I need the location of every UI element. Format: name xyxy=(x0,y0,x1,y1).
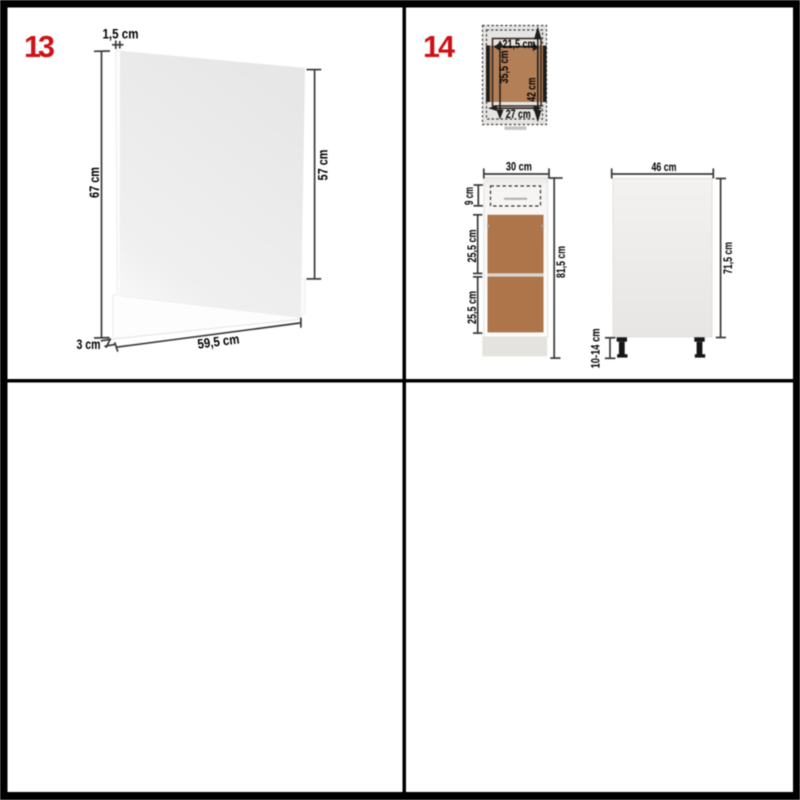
svg-text:13: 13 xyxy=(24,30,55,64)
svg-text:10-14 cm: 10-14 cm xyxy=(591,328,603,368)
svg-text:1,5 cm: 1,5 cm xyxy=(103,27,139,42)
svg-text:27 cm: 27 cm xyxy=(506,109,531,121)
svg-text:14: 14 xyxy=(423,30,455,64)
svg-text:57 cm: 57 cm xyxy=(316,150,331,181)
svg-text:21,5 cm: 21,5 cm xyxy=(503,39,536,51)
svg-text:67 cm: 67 cm xyxy=(87,167,102,198)
svg-text:25,5 cm: 25,5 cm xyxy=(467,291,479,324)
svg-text:3 cm: 3 cm xyxy=(77,337,101,352)
svg-text:81,5 cm: 81,5 cm xyxy=(556,246,568,278)
svg-text:46 cm: 46 cm xyxy=(652,162,677,174)
svg-text:25,5 cm: 25,5 cm xyxy=(467,230,479,263)
svg-text:30 cm: 30 cm xyxy=(506,162,532,174)
svg-text:42 cm: 42 cm xyxy=(527,78,539,102)
svg-text:71,5 cm: 71,5 cm xyxy=(723,242,735,274)
svg-text:9 cm: 9 cm xyxy=(464,187,476,205)
svg-text:35,5 cm: 35,5 cm xyxy=(499,51,511,84)
